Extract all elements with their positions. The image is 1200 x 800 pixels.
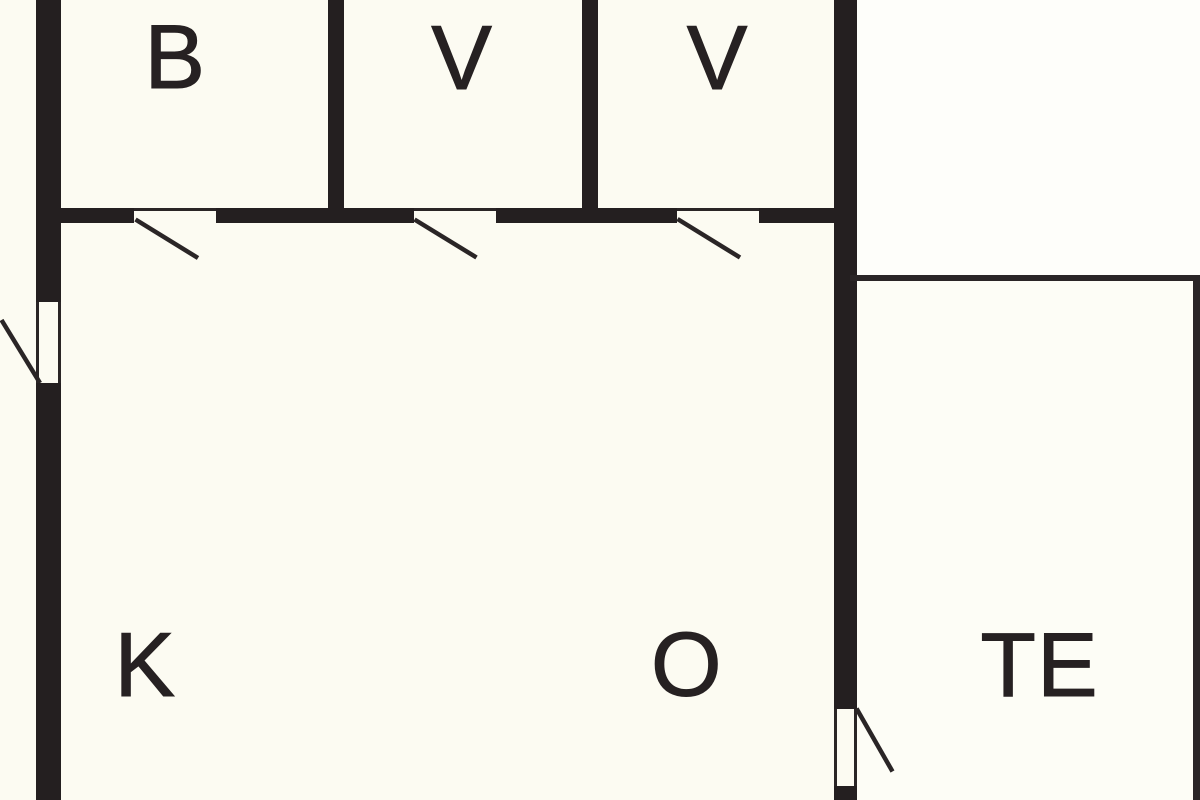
svg-text:O: O: [651, 615, 722, 716]
svg-text:B: B: [144, 7, 205, 108]
svg-text:K: K: [114, 615, 175, 716]
svg-text:TE: TE: [980, 615, 1098, 716]
svg-text:V: V: [431, 8, 492, 109]
svg-text:V: V: [687, 8, 748, 109]
